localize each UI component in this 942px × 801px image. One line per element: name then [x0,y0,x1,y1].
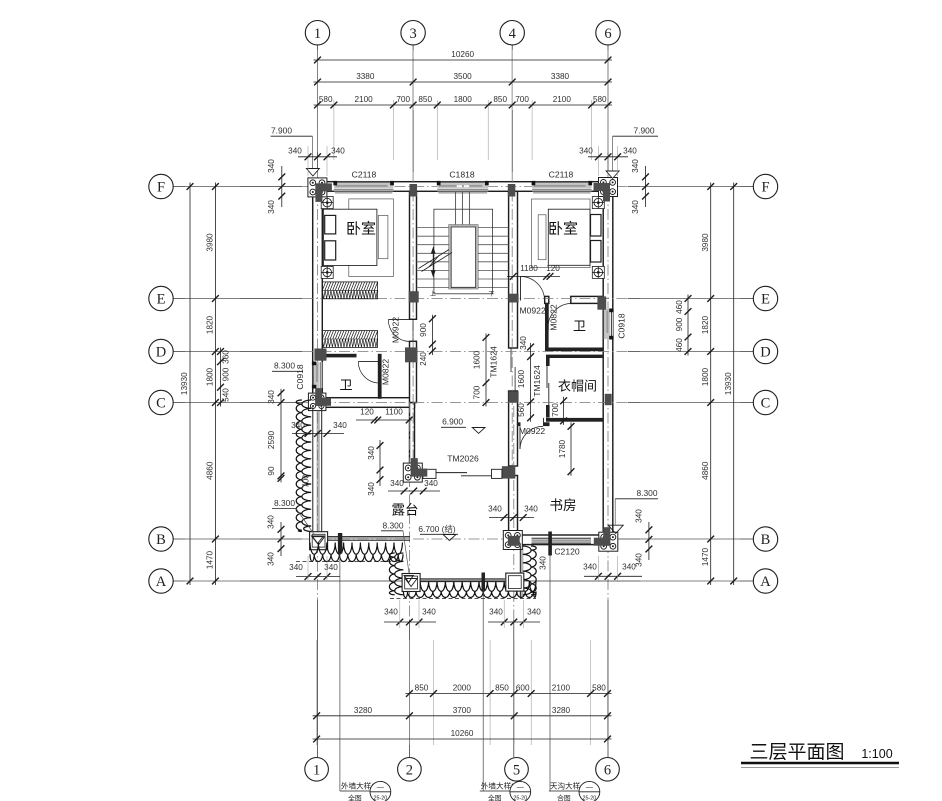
svg-text:TM2026: TM2026 [447,454,479,464]
svg-text:3500: 3500 [453,72,472,81]
svg-text:上: 上 [430,290,436,298]
svg-text:A: A [760,574,771,590]
svg-text:卫: 卫 [573,319,586,334]
svg-text:25-20: 25-20 [513,796,527,801]
svg-text:340: 340 [384,608,398,617]
svg-text:7.900: 7.900 [634,126,655,136]
svg-text:—: — [377,784,384,791]
svg-text:露台: 露台 [392,503,419,518]
svg-text:C0918: C0918 [295,364,305,390]
svg-text:2100: 2100 [552,684,571,693]
svg-text:1: 1 [313,763,320,779]
svg-text:1820: 1820 [206,315,215,334]
svg-text:3280: 3280 [354,706,373,715]
svg-text:340: 340 [488,505,502,514]
svg-text:13930: 13930 [724,372,733,395]
svg-text:C: C [156,396,166,412]
svg-text:340: 340 [527,608,541,617]
svg-text:6: 6 [604,763,611,779]
svg-text:全图: 全图 [488,794,502,801]
svg-text:340: 340 [489,608,503,617]
svg-text:F: F [157,180,165,196]
svg-text:6.700 (结): 6.700 (结) [418,524,455,534]
svg-text:1180: 1180 [520,264,538,273]
svg-text:600: 600 [516,684,530,693]
svg-text:8.300: 8.300 [383,520,404,530]
svg-text:4: 4 [509,26,517,42]
svg-text:700: 700 [515,95,529,104]
svg-text:M0822: M0822 [549,304,559,330]
svg-text:5: 5 [513,763,520,779]
svg-text:8.300: 8.300 [274,498,295,508]
svg-text:3280: 3280 [552,706,571,715]
svg-text:13930: 13930 [180,372,189,395]
svg-text:340: 340 [579,147,593,156]
svg-text:书房: 书房 [550,498,577,513]
svg-text:360: 360 [222,350,231,364]
svg-text:340: 340 [289,563,303,572]
svg-text:2100: 2100 [553,95,572,104]
svg-text:3380: 3380 [356,72,375,81]
svg-text:850: 850 [415,684,429,693]
svg-text:2: 2 [406,763,413,779]
svg-text:M0922: M0922 [391,317,401,343]
svg-text:C2118: C2118 [549,170,574,180]
svg-text:M0922: M0922 [519,426,545,436]
svg-text:M0922: M0922 [519,306,545,316]
svg-text:1780: 1780 [558,439,567,458]
svg-text:340: 340 [267,552,276,566]
svg-text:1800: 1800 [454,95,473,104]
svg-text:560: 560 [517,403,526,417]
svg-text:2000: 2000 [453,684,472,693]
svg-text:460: 460 [675,338,684,352]
svg-text:6: 6 [604,26,611,42]
svg-text:C2120: C2120 [554,547,580,557]
svg-text:卧室: 卧室 [346,221,376,238]
svg-text:700: 700 [551,403,560,417]
svg-text:90: 90 [267,466,276,476]
svg-text:A: A [156,574,167,590]
svg-text:1100: 1100 [385,408,403,417]
svg-text:2100: 2100 [354,95,373,104]
svg-text:6.900: 6.900 [442,417,463,427]
svg-text:3980: 3980 [701,233,710,252]
svg-text:540: 540 [222,388,231,402]
svg-text:340: 340 [635,509,644,523]
svg-text:2590: 2590 [267,430,276,449]
svg-text:25-20: 25-20 [583,796,597,801]
svg-text:340: 340 [331,147,345,156]
svg-text:580: 580 [593,95,607,104]
svg-text:1470: 1470 [206,550,215,569]
svg-text:1470: 1470 [701,547,710,566]
svg-text:D: D [156,345,166,361]
svg-text:4860: 4860 [206,461,215,480]
svg-text:700: 700 [473,385,482,399]
svg-text:340: 340 [622,563,636,572]
svg-text:25-20: 25-20 [374,796,388,801]
svg-text:340: 340 [424,479,438,488]
svg-text:7.900: 7.900 [271,126,292,136]
svg-text:340: 340 [524,505,538,514]
svg-text:1600: 1600 [473,350,482,369]
svg-text:E: E [157,292,166,308]
svg-text:TM1624: TM1624 [532,365,542,397]
svg-text:340: 340 [288,147,302,156]
svg-text:卫: 卫 [339,378,352,393]
svg-text:3380: 3380 [551,72,570,81]
svg-text:850: 850 [493,95,507,104]
svg-text:三层平面图: 三层平面图 [749,742,844,763]
svg-text:340: 340 [635,553,644,567]
svg-text:E: E [761,292,770,308]
svg-text:850: 850 [495,684,509,693]
svg-text:340: 340 [267,159,276,173]
svg-text:B: B [156,532,166,548]
svg-text:衣帽间: 衣帽间 [558,379,597,394]
svg-text:B: B [761,532,771,548]
svg-text:580: 580 [592,684,606,693]
svg-text:—: — [517,784,524,791]
svg-text:700: 700 [396,95,410,104]
svg-text:—: — [586,784,593,791]
svg-text:340: 340 [631,159,640,173]
svg-text:8.300: 8.300 [637,488,658,498]
svg-text:340: 340 [324,563,338,572]
svg-text:120: 120 [360,408,374,417]
svg-text:340: 340 [267,515,276,529]
svg-text:8.300: 8.300 [274,361,295,371]
svg-text:900: 900 [675,317,684,331]
svg-text:4860: 4860 [701,461,710,480]
svg-text:900: 900 [419,323,428,337]
svg-text:340: 340 [623,147,637,156]
svg-text:TM1624: TM1624 [489,346,499,378]
svg-text:850: 850 [418,95,432,104]
svg-text:340: 340 [367,446,376,460]
svg-text:340: 340 [291,421,305,430]
svg-text:340: 340 [539,556,548,570]
svg-text:340: 340 [367,482,376,496]
svg-text:3700: 3700 [453,706,472,715]
svg-text:1:100: 1:100 [861,747,892,761]
svg-text:C: C [761,396,771,412]
svg-text:F: F [761,180,769,196]
svg-text:C0918: C0918 [617,313,627,339]
svg-text:340: 340 [267,390,276,404]
svg-text:D: D [760,345,770,361]
svg-text:合图: 合图 [557,794,571,801]
svg-text:340: 340 [422,608,436,617]
svg-text:340: 340 [631,200,640,214]
svg-text:340: 340 [519,336,528,350]
svg-text:340: 340 [583,563,597,572]
svg-text:340: 340 [333,421,347,430]
svg-text:580: 580 [319,95,333,104]
svg-text:天沟大样: 天沟大样 [550,781,581,791]
svg-text:3: 3 [409,26,416,42]
svg-text:460: 460 [675,300,684,314]
svg-text:1800: 1800 [701,367,710,386]
svg-text:700: 700 [302,474,311,488]
svg-text:C1818: C1818 [449,170,475,180]
svg-text:1: 1 [314,26,321,42]
svg-text:120: 120 [546,264,560,273]
svg-text:240: 240 [419,352,428,366]
svg-text:1600: 1600 [517,369,526,388]
svg-text:卧室: 卧室 [548,221,578,238]
svg-text:10260: 10260 [451,50,474,59]
svg-text:C2118: C2118 [352,170,377,180]
svg-text:1800: 1800 [206,367,215,386]
svg-text:10260: 10260 [451,729,474,738]
svg-text:M0822: M0822 [381,359,391,385]
svg-text:全图: 全图 [348,794,362,801]
svg-text:340: 340 [267,200,276,214]
svg-text:900: 900 [222,367,231,381]
svg-text:3980: 3980 [206,233,215,252]
svg-text:下: 下 [488,291,494,298]
svg-text:340: 340 [390,479,404,488]
svg-text:1820: 1820 [701,315,710,334]
